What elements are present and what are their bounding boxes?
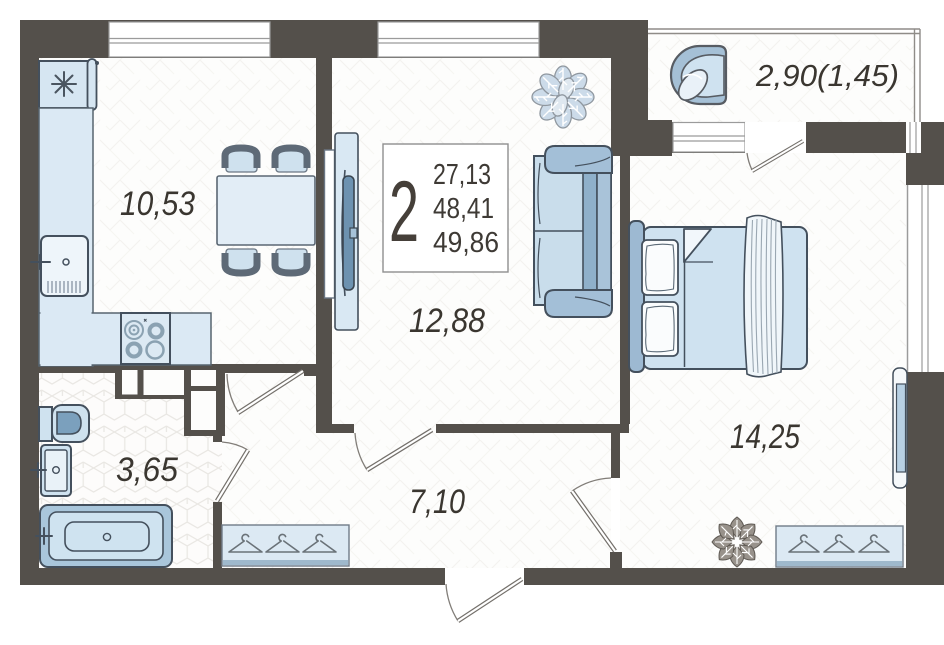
- svg-text:3,65: 3,65: [116, 451, 178, 489]
- svg-text:2,90(1,45): 2,90(1,45): [755, 58, 899, 93]
- svg-text:7,10: 7,10: [409, 483, 465, 521]
- svg-text:2: 2: [389, 164, 419, 260]
- svg-text:48,41: 48,41: [433, 193, 494, 225]
- svg-text:14,25: 14,25: [730, 418, 800, 456]
- svg-text:49,86: 49,86: [433, 227, 499, 259]
- svg-text:27,13: 27,13: [433, 159, 491, 191]
- svg-text:10,53: 10,53: [120, 185, 195, 223]
- svg-text:12,88: 12,88: [409, 302, 485, 340]
